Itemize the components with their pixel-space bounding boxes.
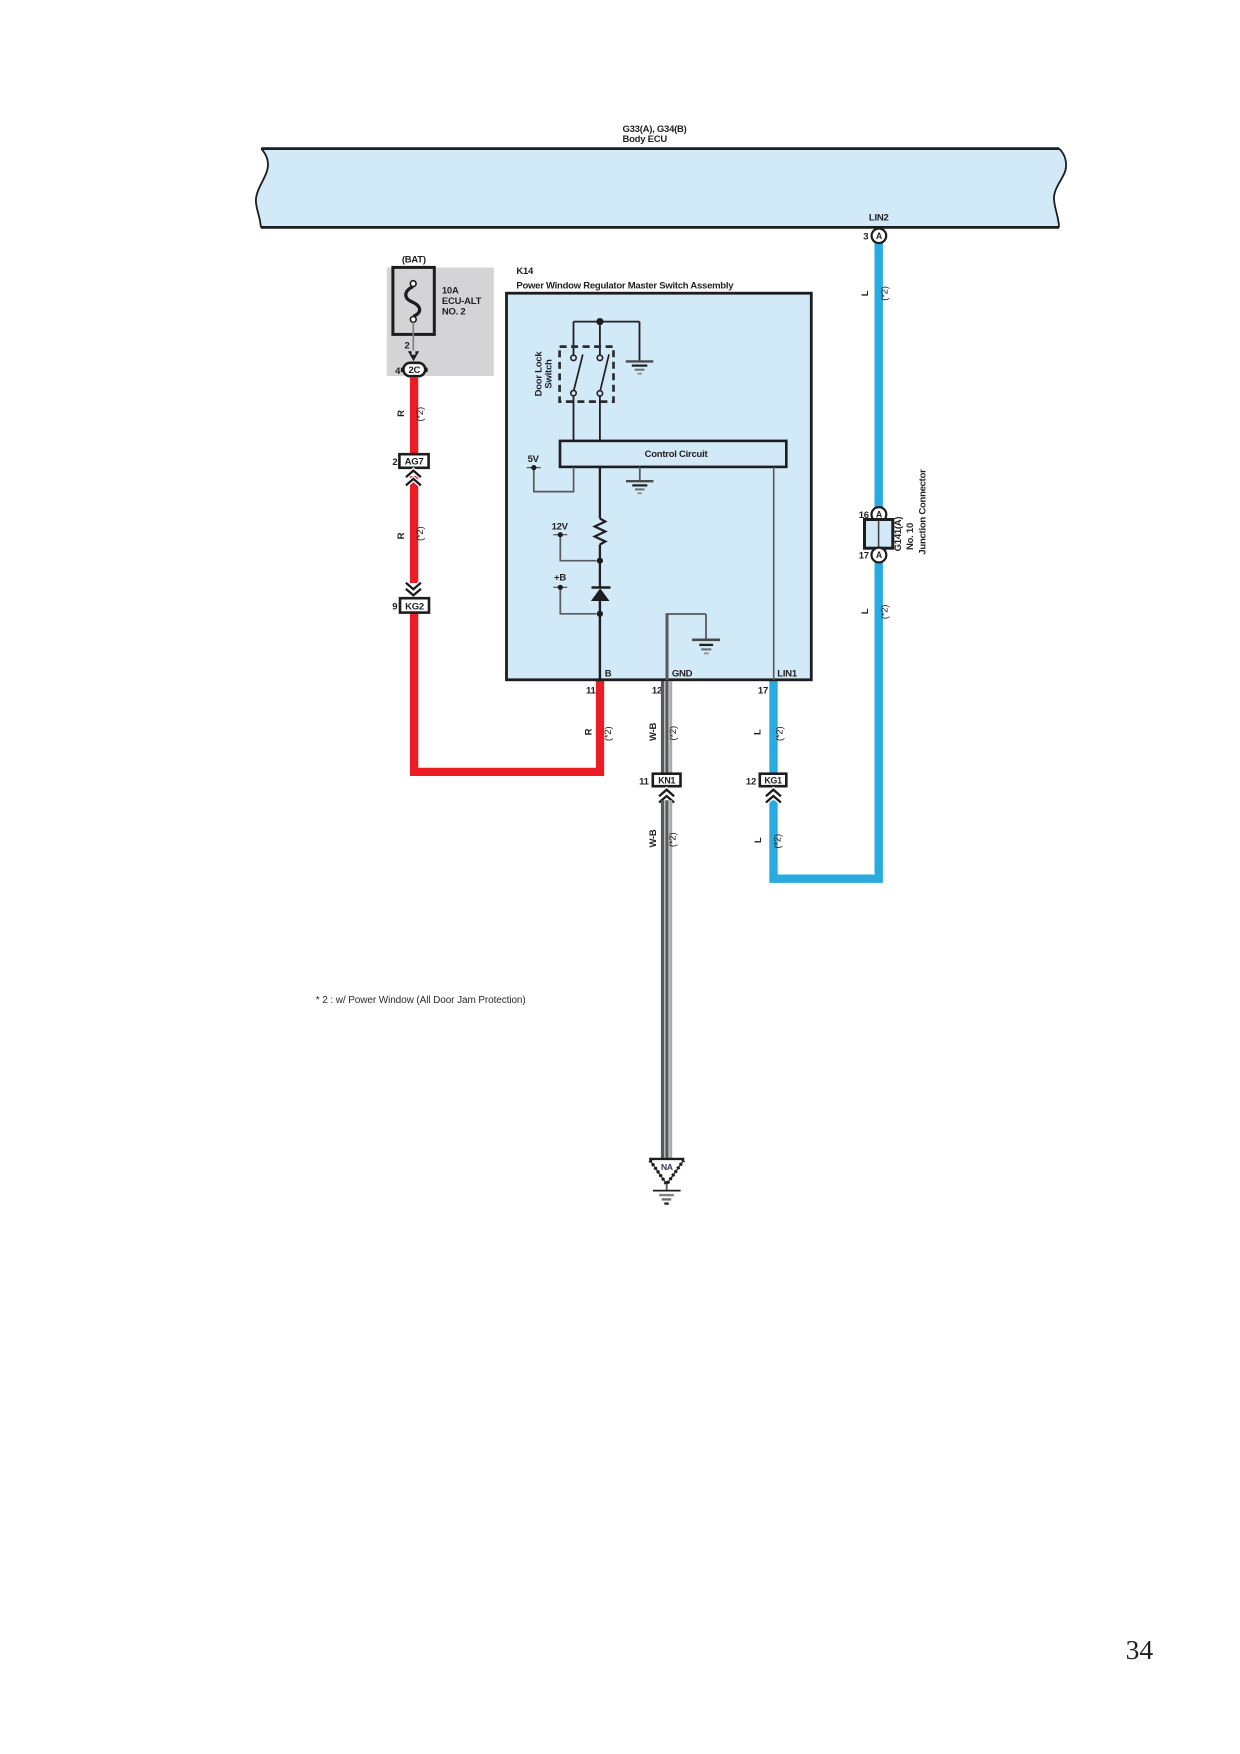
svg-text:17: 17 <box>758 685 768 696</box>
svg-text:NA: NA <box>661 1162 673 1172</box>
svg-text:+B: +B <box>554 572 566 583</box>
svg-text:Body ECU: Body ECU <box>623 134 668 145</box>
svg-text:KN1: KN1 <box>658 776 675 786</box>
svg-text:3: 3 <box>863 231 868 242</box>
svg-text:11: 11 <box>639 776 650 787</box>
svg-text:LIN2: LIN2 <box>869 213 889 224</box>
svg-text:(*2): (*2) <box>668 833 679 848</box>
svg-text:(*2): (*2) <box>415 527 426 542</box>
svg-text:R: R <box>396 410 407 417</box>
svg-text:12V: 12V <box>552 522 569 533</box>
svg-text:11: 11 <box>586 685 597 696</box>
svg-text:(*2): (*2) <box>880 605 891 620</box>
svg-text:(*2): (*2) <box>603 727 614 742</box>
svg-text:17: 17 <box>859 550 869 561</box>
svg-text:L: L <box>753 837 764 843</box>
svg-text:No. 10: No. 10 <box>905 523 916 550</box>
svg-text:Power Window Regulator Master: Power Window Regulator Master Switch Ass… <box>516 280 734 291</box>
svg-text:B: B <box>605 668 612 679</box>
svg-text:G141(A): G141(A) <box>893 517 904 552</box>
svg-text:K14: K14 <box>516 266 534 277</box>
svg-text:KG1: KG1 <box>764 776 782 786</box>
svg-text:2: 2 <box>392 457 397 468</box>
svg-text:W-B: W-B <box>648 722 659 740</box>
svg-text:L: L <box>752 729 763 735</box>
svg-text:(*2): (*2) <box>668 726 679 741</box>
svg-text:R: R <box>396 532 407 539</box>
svg-text:(*2): (*2) <box>775 727 786 742</box>
svg-text:KG2: KG2 <box>405 601 424 612</box>
svg-text:12: 12 <box>652 685 662 696</box>
svg-text:R: R <box>584 728 595 735</box>
svg-text:9: 9 <box>392 602 397 613</box>
svg-text:LIN1: LIN1 <box>777 668 798 679</box>
svg-text:NO. 2: NO. 2 <box>442 306 466 317</box>
svg-text:10A: 10A <box>442 286 459 297</box>
svg-text:2: 2 <box>405 341 410 352</box>
svg-text:(BAT): (BAT) <box>402 255 426 266</box>
svg-text:Junction Connector: Junction Connector <box>918 469 929 555</box>
svg-text:GND: GND <box>672 669 693 680</box>
svg-text:34: 34 <box>1126 1634 1154 1665</box>
svg-text:(*2): (*2) <box>773 834 784 849</box>
svg-text:Control Circuit: Control Circuit <box>645 449 709 460</box>
svg-text:Switch: Switch <box>544 359 555 389</box>
svg-text:L: L <box>860 608 871 614</box>
svg-text:* 2 : w/ Power Window (All Doo: * 2 : w/ Power Window (All Door Jam Prot… <box>316 995 526 1006</box>
svg-text:2C: 2C <box>408 365 420 376</box>
svg-text:A: A <box>876 231 883 241</box>
svg-text:(*2): (*2) <box>880 286 891 301</box>
svg-text:W-B: W-B <box>648 829 659 847</box>
svg-text:L: L <box>860 290 871 296</box>
svg-text:(*2): (*2) <box>415 407 426 422</box>
svg-text:A: A <box>876 550 883 560</box>
svg-text:AG7: AG7 <box>405 457 424 468</box>
svg-text:12: 12 <box>746 776 756 787</box>
svg-text:5V: 5V <box>528 454 540 465</box>
